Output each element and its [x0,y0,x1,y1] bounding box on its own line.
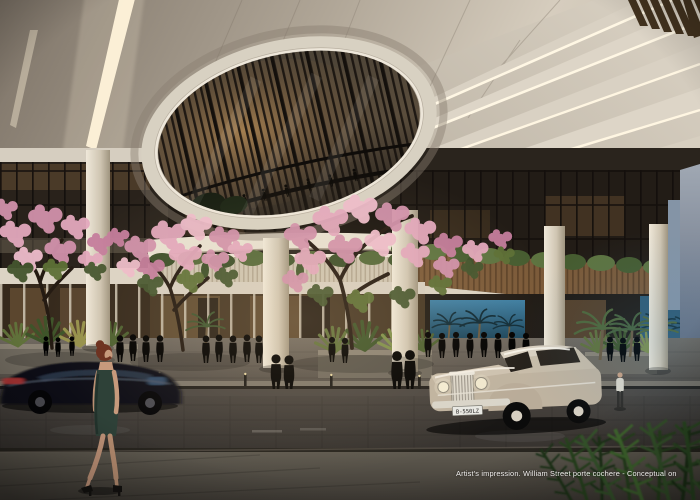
vignette [0,0,700,500]
scene-rendering: B-550LZ [0,0,700,500]
artist-impression-image: B-550LZ Artist's impression. William Str… [0,0,700,500]
caption: Artist's impression. William Street port… [456,469,677,478]
